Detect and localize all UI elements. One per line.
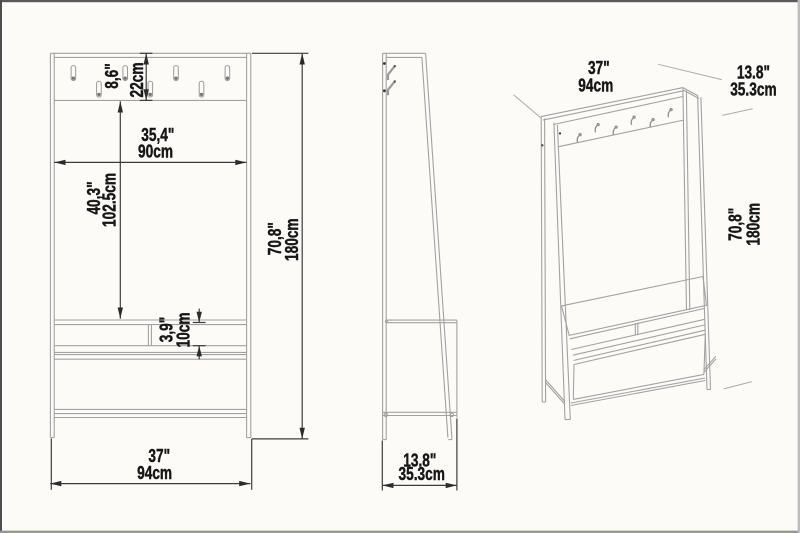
svg-text:8,6": 8,6"	[102, 63, 122, 89]
svg-text:102.5cm: 102.5cm	[99, 173, 119, 227]
svg-text:35.3cm: 35.3cm	[398, 464, 444, 484]
svg-text:180cm: 180cm	[744, 203, 764, 246]
svg-text:180cm: 180cm	[282, 218, 302, 261]
svg-text:94cm: 94cm	[578, 76, 613, 96]
svg-text:10cm: 10cm	[174, 312, 194, 347]
svg-text:35.3cm: 35.3cm	[730, 79, 776, 99]
svg-text:94cm: 94cm	[137, 463, 172, 483]
svg-text:22cm: 22cm	[127, 62, 147, 97]
svg-text:90cm: 90cm	[138, 142, 173, 162]
